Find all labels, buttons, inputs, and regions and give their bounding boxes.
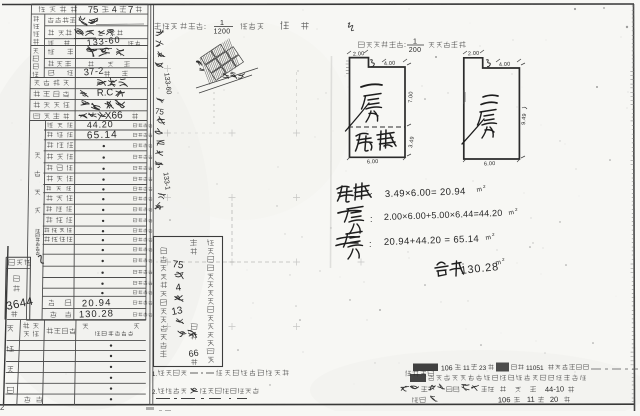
svg-text:4.00: 4.00 — [499, 62, 511, 69]
svg-text:9.49: 9.49 — [521, 113, 528, 125]
svg-text:2.00: 2.00 — [353, 51, 365, 58]
svg-text:11: 11 — [527, 395, 535, 404]
svg-text:44.20: 44.20 — [87, 119, 114, 130]
svg-text::: : — [204, 24, 206, 31]
svg-text:1: 1 — [413, 37, 417, 46]
svg-text::: : — [369, 239, 372, 249]
svg-text:R.C: R.C — [97, 87, 114, 99]
svg-text:6.00: 6.00 — [484, 161, 496, 168]
svg-text:37-2: 37-2 — [83, 65, 104, 78]
svg-text:66: 66 — [188, 348, 199, 359]
svg-text:75: 75 — [172, 259, 185, 272]
svg-text:20: 20 — [550, 395, 559, 404]
svg-text:4.00: 4.00 — [384, 61, 396, 68]
svg-text:44-10: 44-10 — [545, 384, 564, 394]
svg-text:1: 1 — [220, 18, 224, 27]
svg-text:7.00: 7.00 — [408, 91, 415, 103]
svg-text:6.00: 6.00 — [367, 159, 379, 166]
svg-text:65.14: 65.14 — [87, 129, 118, 141]
svg-text:.: . — [99, 101, 101, 110]
svg-text:11051: 11051 — [526, 365, 544, 372]
svg-text:4: 4 — [111, 4, 117, 14]
svg-text:2.00: 2.00 — [468, 51, 480, 58]
svg-text::: : — [370, 190, 373, 200]
svg-text:1200: 1200 — [214, 29, 231, 36]
svg-text::: : — [404, 42, 406, 49]
svg-text:2.: 2. — [152, 390, 157, 396]
svg-text:106: 106 — [498, 395, 511, 404]
svg-text:106: 106 — [441, 365, 453, 372]
svg-text::: : — [370, 214, 373, 224]
svg-text:7: 7 — [128, 5, 134, 16]
svg-text:11: 11 — [463, 365, 470, 372]
svg-text:23: 23 — [479, 365, 487, 372]
svg-text:1.: 1. — [152, 372, 157, 378]
svg-text:75: 75 — [154, 107, 165, 117]
svg-text:75: 75 — [88, 4, 99, 16]
svg-text:130.28: 130.28 — [79, 308, 114, 320]
svg-text:2: 2 — [0, 403, 5, 411]
svg-text:200: 200 — [409, 47, 422, 54]
